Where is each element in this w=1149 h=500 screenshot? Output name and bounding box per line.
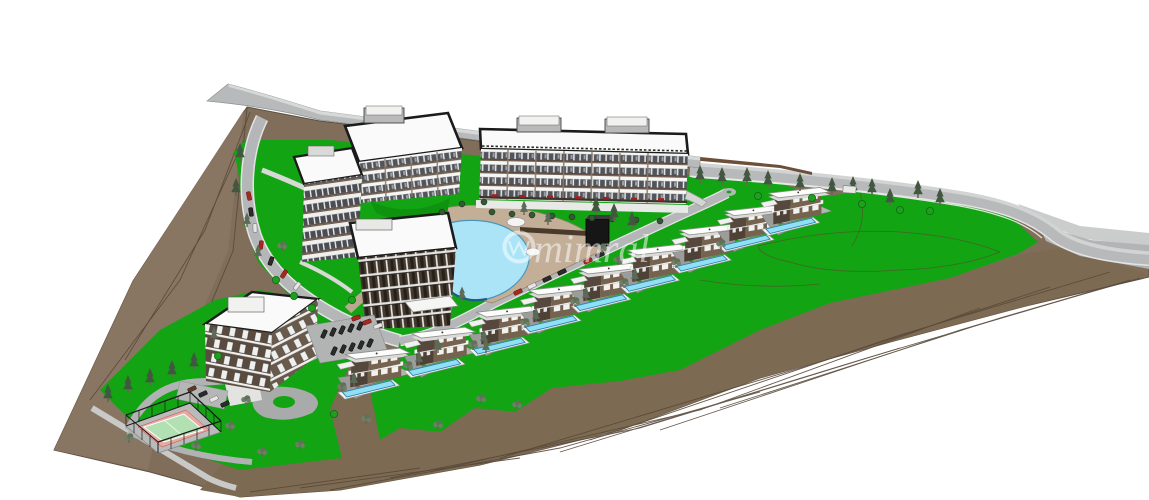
svg-text:mimral: mimral — [534, 226, 650, 271]
